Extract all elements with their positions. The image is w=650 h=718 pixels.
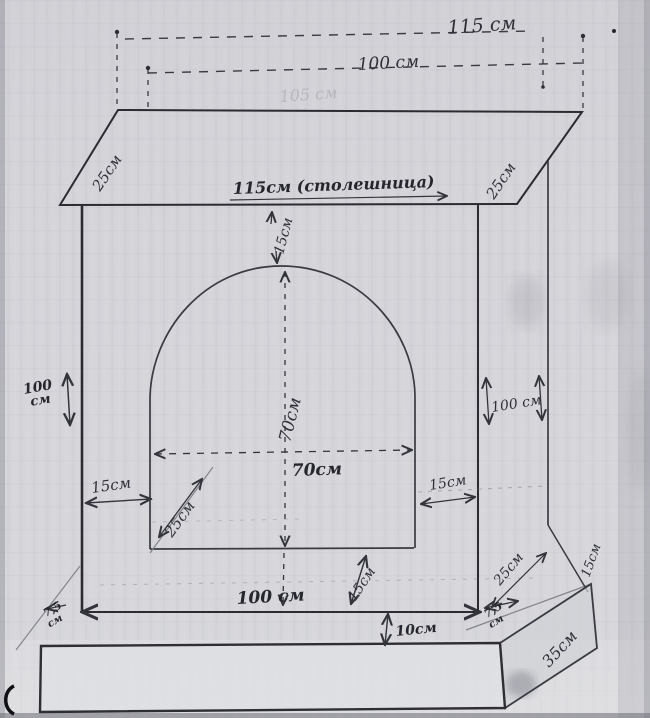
label-firebox-width: 70см: [291, 459, 342, 481]
projection-dot: [115, 30, 119, 34]
fireplace-drawing: 115 см 100 см 105 см 25см 115см (столешн…: [0, 0, 650, 718]
projection-dot: [581, 34, 585, 38]
label-body-width: 100 см: [236, 585, 305, 609]
pencil-smudge: [506, 671, 536, 697]
ink-speck: [612, 29, 616, 33]
fireplace-sketch-photo: 115 см 100 см 105 см 25см 115см (столешн…: [0, 0, 650, 718]
projection-dot: [146, 66, 150, 70]
projection-dot: [541, 85, 545, 89]
label-erased-dimension: 105 см: [279, 83, 338, 106]
plinth-front-face: [40, 643, 505, 712]
label-topview-depth: 100 см: [357, 52, 419, 75]
